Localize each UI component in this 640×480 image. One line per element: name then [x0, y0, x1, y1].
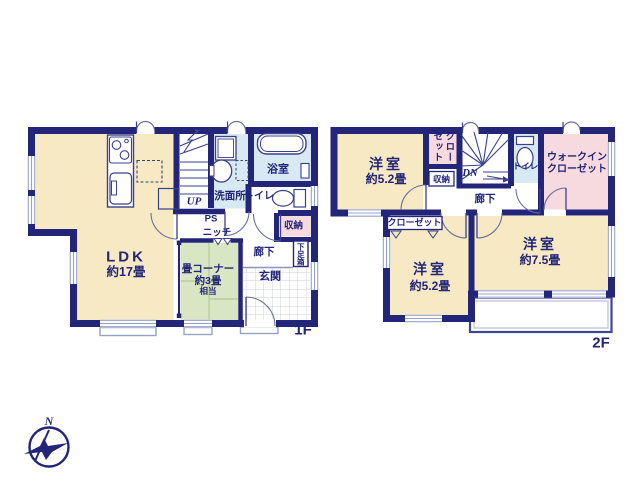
- window: [184, 320, 212, 328]
- label-ldk-size: 約17畳: [107, 265, 146, 278]
- door-arc: [463, 123, 479, 135]
- window: [348, 209, 381, 217]
- porch-steps: [100, 327, 278, 336]
- balcony: [470, 298, 612, 333]
- label-niche: ニッチ: [203, 228, 232, 238]
- label-bedroom-a-size: 約5.2畳: [366, 173, 407, 185]
- label-bedroom-c: 洋室: [523, 237, 557, 251]
- label-toilet-1f: トイレ: [244, 192, 274, 202]
- label-floor2: 2F: [592, 335, 610, 350]
- label-bedroom-c-size: 約7.5畳: [520, 254, 561, 266]
- toilet-fixture-1f: [273, 190, 306, 208]
- label-stairs-dn: DN: [462, 168, 477, 179]
- window: [311, 186, 319, 206]
- label-tatami-size: 約3畳: [195, 276, 222, 287]
- label-bath: 浴室: [267, 165, 289, 176]
- label-closet-b: クローゼット: [387, 219, 441, 228]
- window: [100, 320, 156, 328]
- window: [552, 290, 606, 298]
- label-washroom: 洗面所: [214, 191, 246, 202]
- label-entrance: 玄関: [259, 271, 281, 282]
- label-bedroom-b: 洋室: [413, 262, 447, 276]
- kitchen-counter: [108, 135, 134, 207]
- label-toilet-2f: トイレ: [513, 161, 539, 170]
- label-pipe-space: PS: [205, 214, 218, 224]
- label-bedroom-b-size: 約5.2畳: [410, 280, 451, 292]
- door-toilet-2f: [516, 189, 540, 213]
- window: [383, 237, 391, 268]
- washing-machine: [216, 137, 237, 161]
- window: [478, 290, 544, 298]
- window: [608, 142, 616, 176]
- label-closet-a: クローゼット: [431, 131, 455, 171]
- label-wic-line1: ウォークイン: [547, 153, 607, 163]
- label-hallway-1f: 廊下: [254, 247, 275, 258]
- label-shoe-box: 下足箱: [297, 242, 305, 265]
- label-storage-1f: 収納: [284, 221, 303, 231]
- label-floor1: 1F: [294, 323, 312, 338]
- label-storage-2f: 収納: [433, 175, 450, 184]
- door-arc: [137, 122, 155, 135]
- label-wic-line2: クローゼット: [547, 165, 607, 175]
- compass: [24, 428, 69, 467]
- label-bedroom-a: 洋室: [369, 157, 403, 171]
- stairs-1f: [180, 129, 208, 194]
- label-stairs-up: UP: [187, 196, 202, 207]
- room-ldk: [35, 134, 174, 320]
- window: [28, 196, 36, 224]
- door-arc: [563, 122, 580, 134]
- label-ldk: LDK: [106, 250, 146, 265]
- label-tatami: 畳コーナー: [182, 264, 235, 275]
- label-hallway-2f: 廊下: [475, 193, 496, 204]
- label-tatami-note: 相当: [199, 287, 216, 296]
- door-arc: [228, 122, 246, 135]
- window: [405, 315, 442, 323]
- window: [28, 156, 36, 190]
- window: [608, 226, 616, 277]
- window: [311, 262, 319, 290]
- label-compass-north: N: [45, 415, 54, 427]
- floorplan-canvas: LDK 約17畳 畳コーナー 約3畳 相当 洗面所 浴室 トイレ 収納 廊下 下…: [0, 0, 640, 480]
- window: [70, 252, 78, 284]
